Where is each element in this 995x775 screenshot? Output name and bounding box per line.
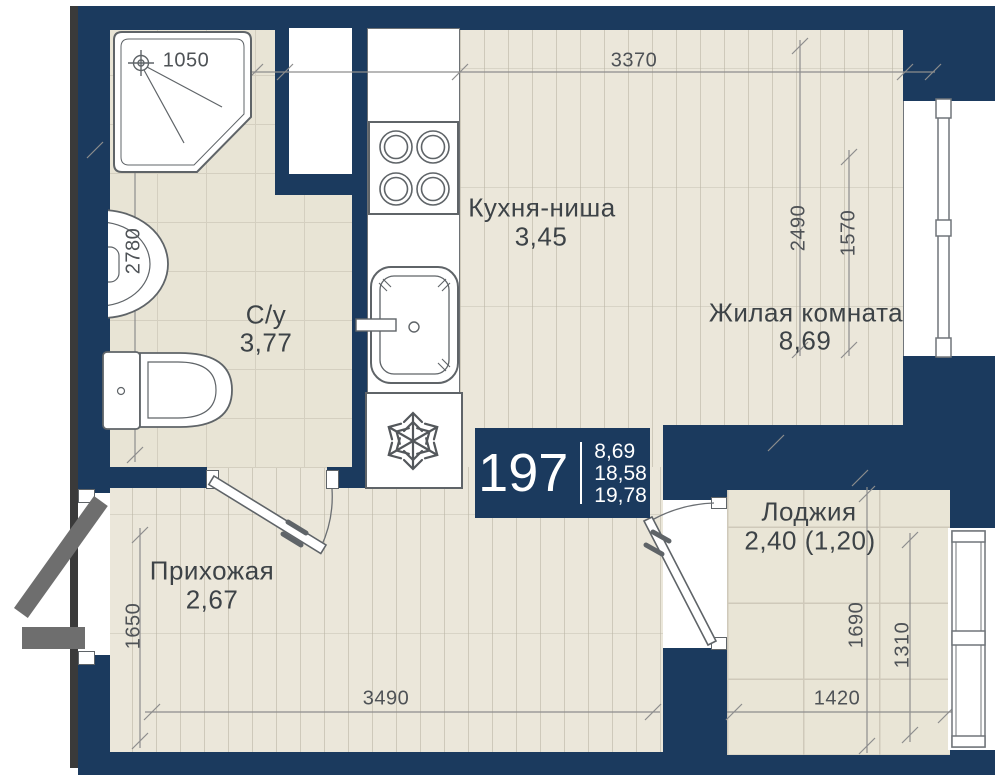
balcony-door-opening [663,500,727,648]
wall-bottom [78,752,663,775]
wall-right-mid [903,356,995,426]
unit-areas: 8,69 18,58 19,78 [594,441,647,506]
wall-bath-kitchen [352,28,367,488]
bath-door-jamb-right [326,470,339,489]
area-mid-value: 18,58 [594,463,647,484]
wall-shaft-left [275,28,289,195]
area-total-value: 19,78 [594,485,647,506]
hallway-area: 2,67 [186,585,239,616]
dim-loggia-depth: 1690 [846,602,869,649]
dim-living-window: 1570 [838,210,861,257]
dim-hallway-depth: 1650 [123,603,146,650]
kitchen-area: 3,45 [515,222,568,253]
duct-shaft [289,28,352,174]
unit-info-badge: 197 8,69 18,58 19,78 [475,428,650,518]
bathroom-area: 3,77 [240,328,293,359]
entry-door-jamb-top [78,489,95,503]
wall-bath-bottom-left [108,467,207,488]
dim-main-width-top: 3370 [611,50,658,73]
wall-top [78,6,995,30]
dim-hallway-width: 3490 [363,688,410,711]
entry-door-jamb-bottom [78,651,95,665]
wall-left-lower [78,655,110,755]
area-living-value: 8,69 [594,441,647,462]
dim-shower-width: 1050 [163,50,210,73]
kitchen-counter [367,28,460,488]
dim-loggia-width: 1420 [814,688,861,711]
wall-left-upper [78,28,110,493]
unit-number: 197 [478,442,568,504]
kitchen-label: Кухня-ниша [468,193,615,224]
loggia-area: 2,40 (1,20) [744,526,875,557]
bathroom-label: С/у [246,300,287,331]
entry-door-opening [78,493,110,655]
bath-door-jamb-left [206,470,219,489]
loggia-label: Лоджия [761,497,856,528]
wall-loggia-bottom [663,755,995,775]
wall-right-top [903,28,995,102]
badge-divider [580,442,582,504]
loggia-window-bay [948,528,995,750]
left-outer-wall-strip [70,6,78,768]
floor-plan: Кухня-ниша 3,45 Жилая комната 8,69 С/у 3… [0,0,995,775]
dim-living-depth: 2490 [788,205,811,252]
living-window-bay [903,101,995,356]
wall-loggia-top [663,425,995,490]
balcony-door-jamb-bottom [711,637,727,650]
hallway-label: Прихожая [150,556,274,587]
dim-loggia-window: 1310 [892,622,915,669]
living-label: Жилая комната [709,298,903,329]
balcony-door-jamb-top [711,497,727,509]
living-area: 8,69 [779,326,832,357]
dim-bathroom-depth: 2780 [123,228,146,275]
